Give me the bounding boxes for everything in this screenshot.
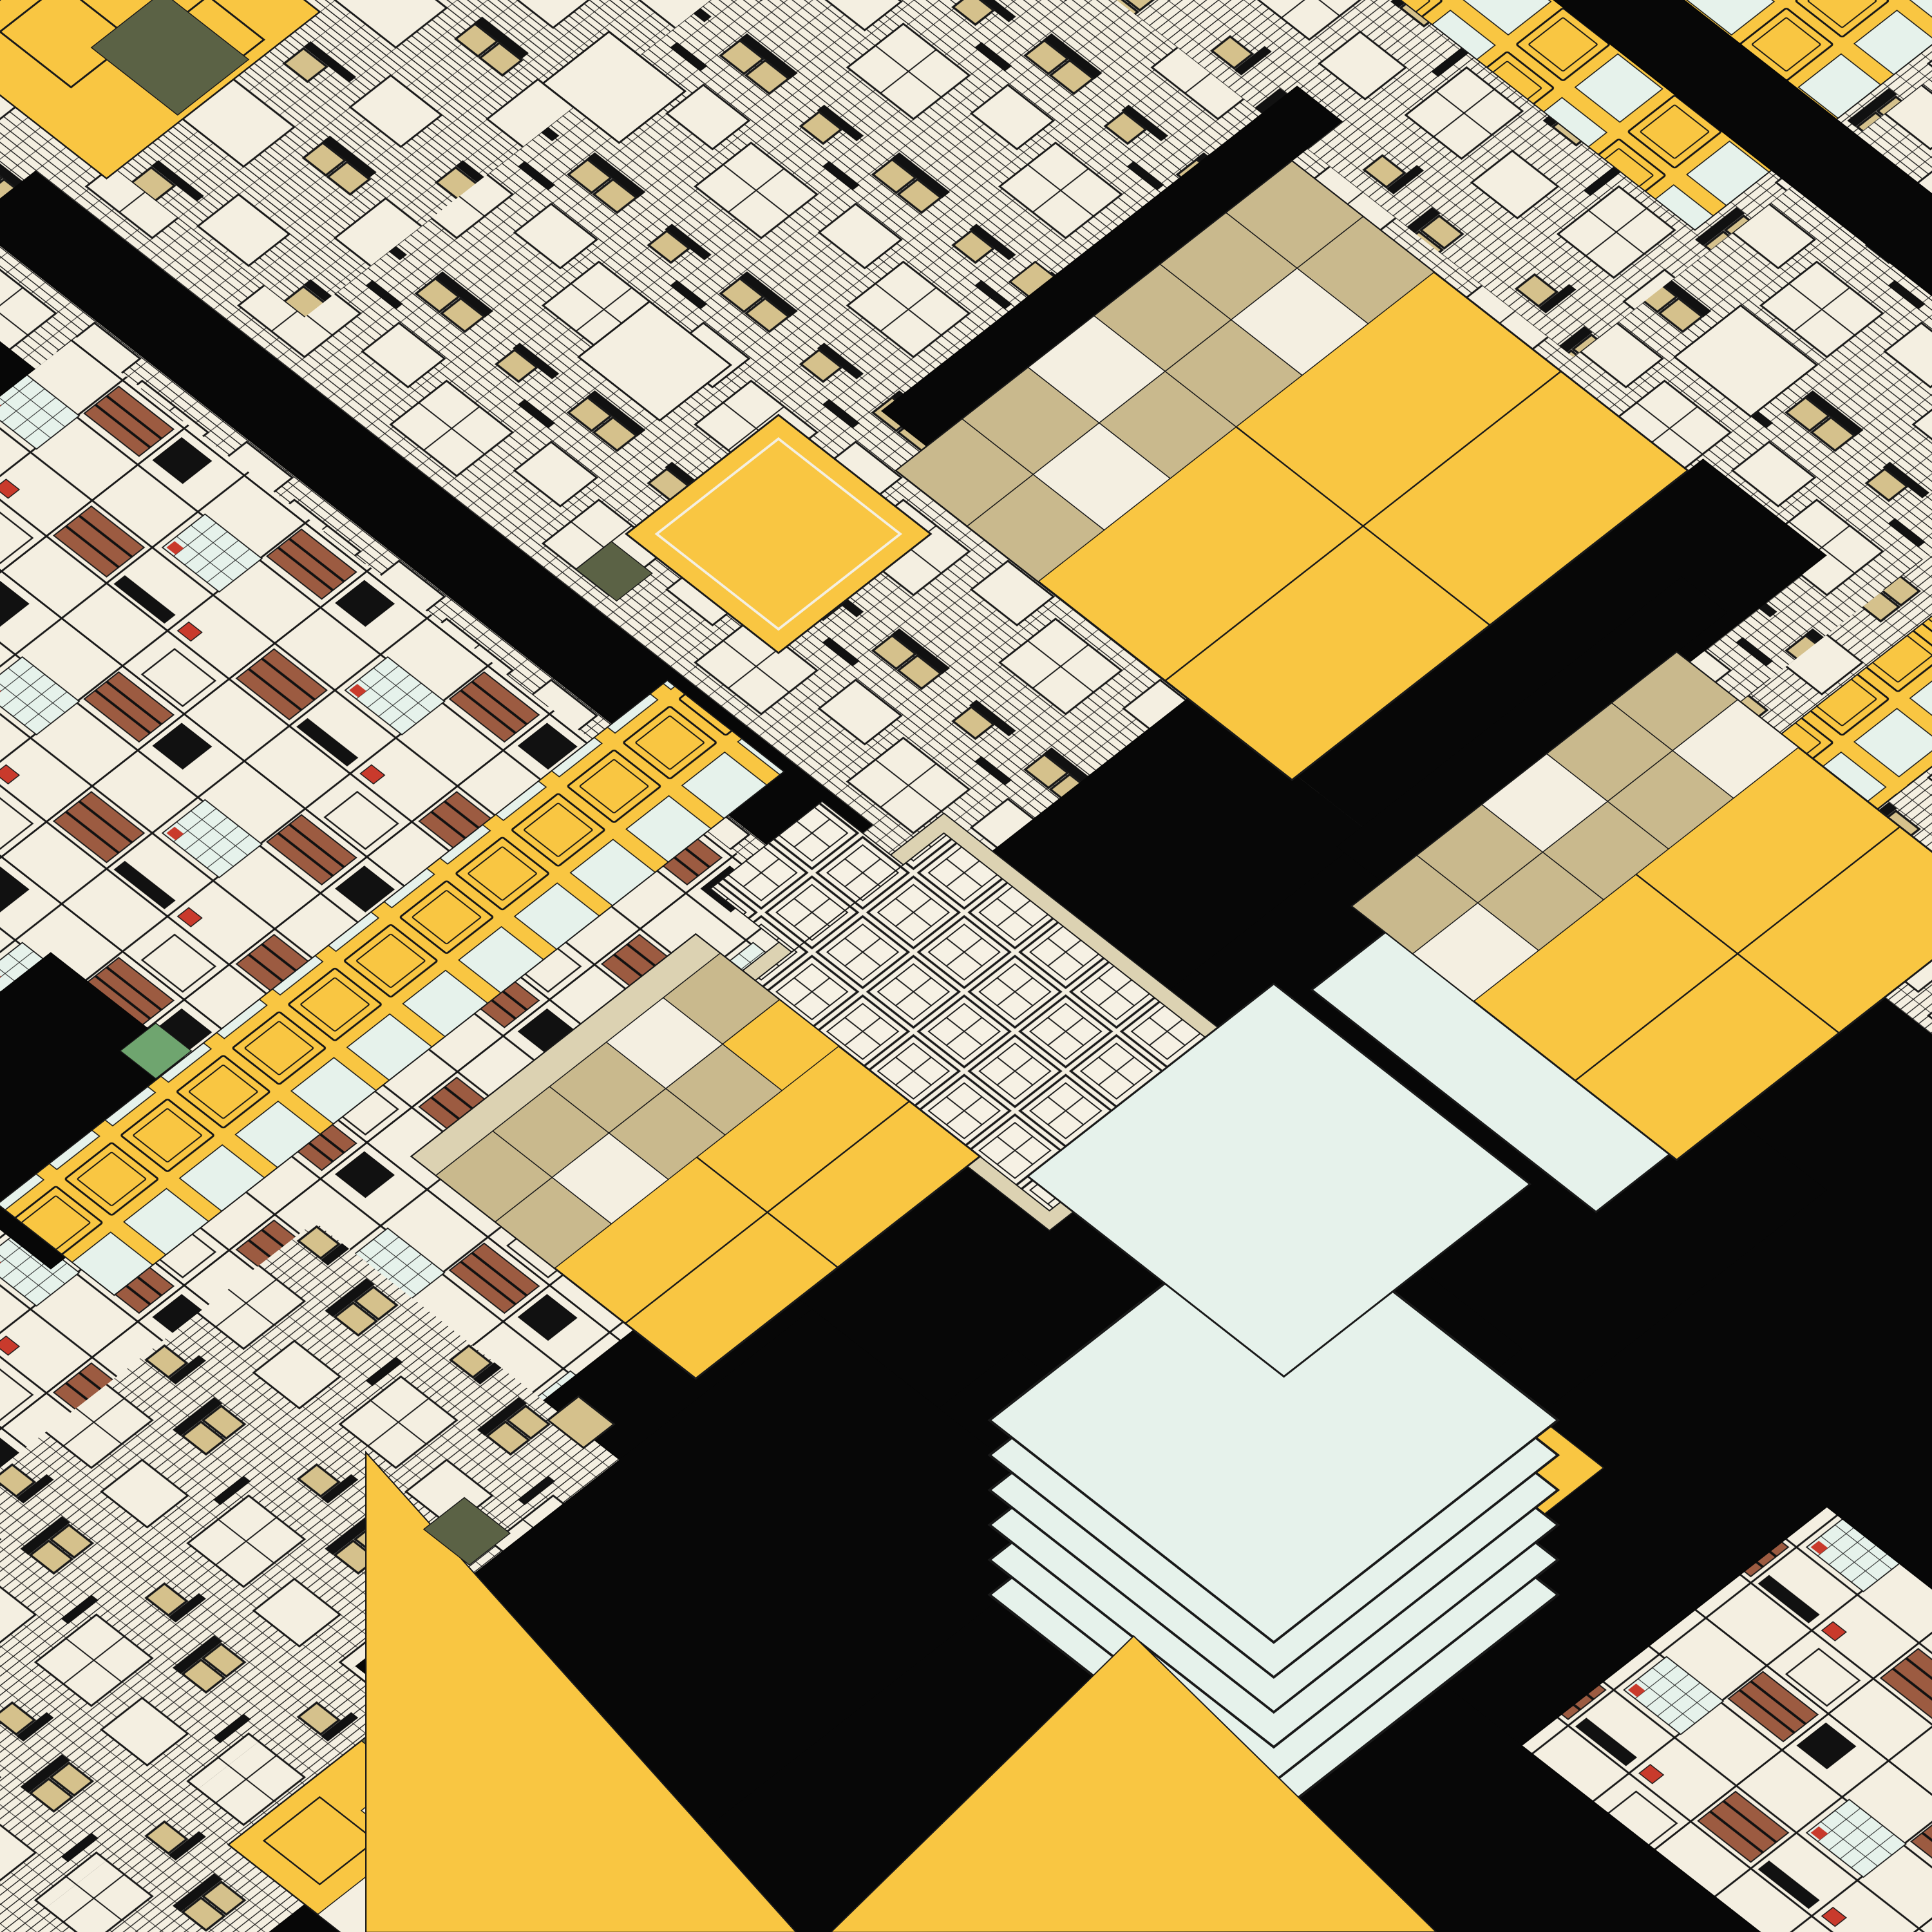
artwork-canvas — [0, 0, 1932, 1932]
artwork-stage — [0, 0, 1932, 1932]
